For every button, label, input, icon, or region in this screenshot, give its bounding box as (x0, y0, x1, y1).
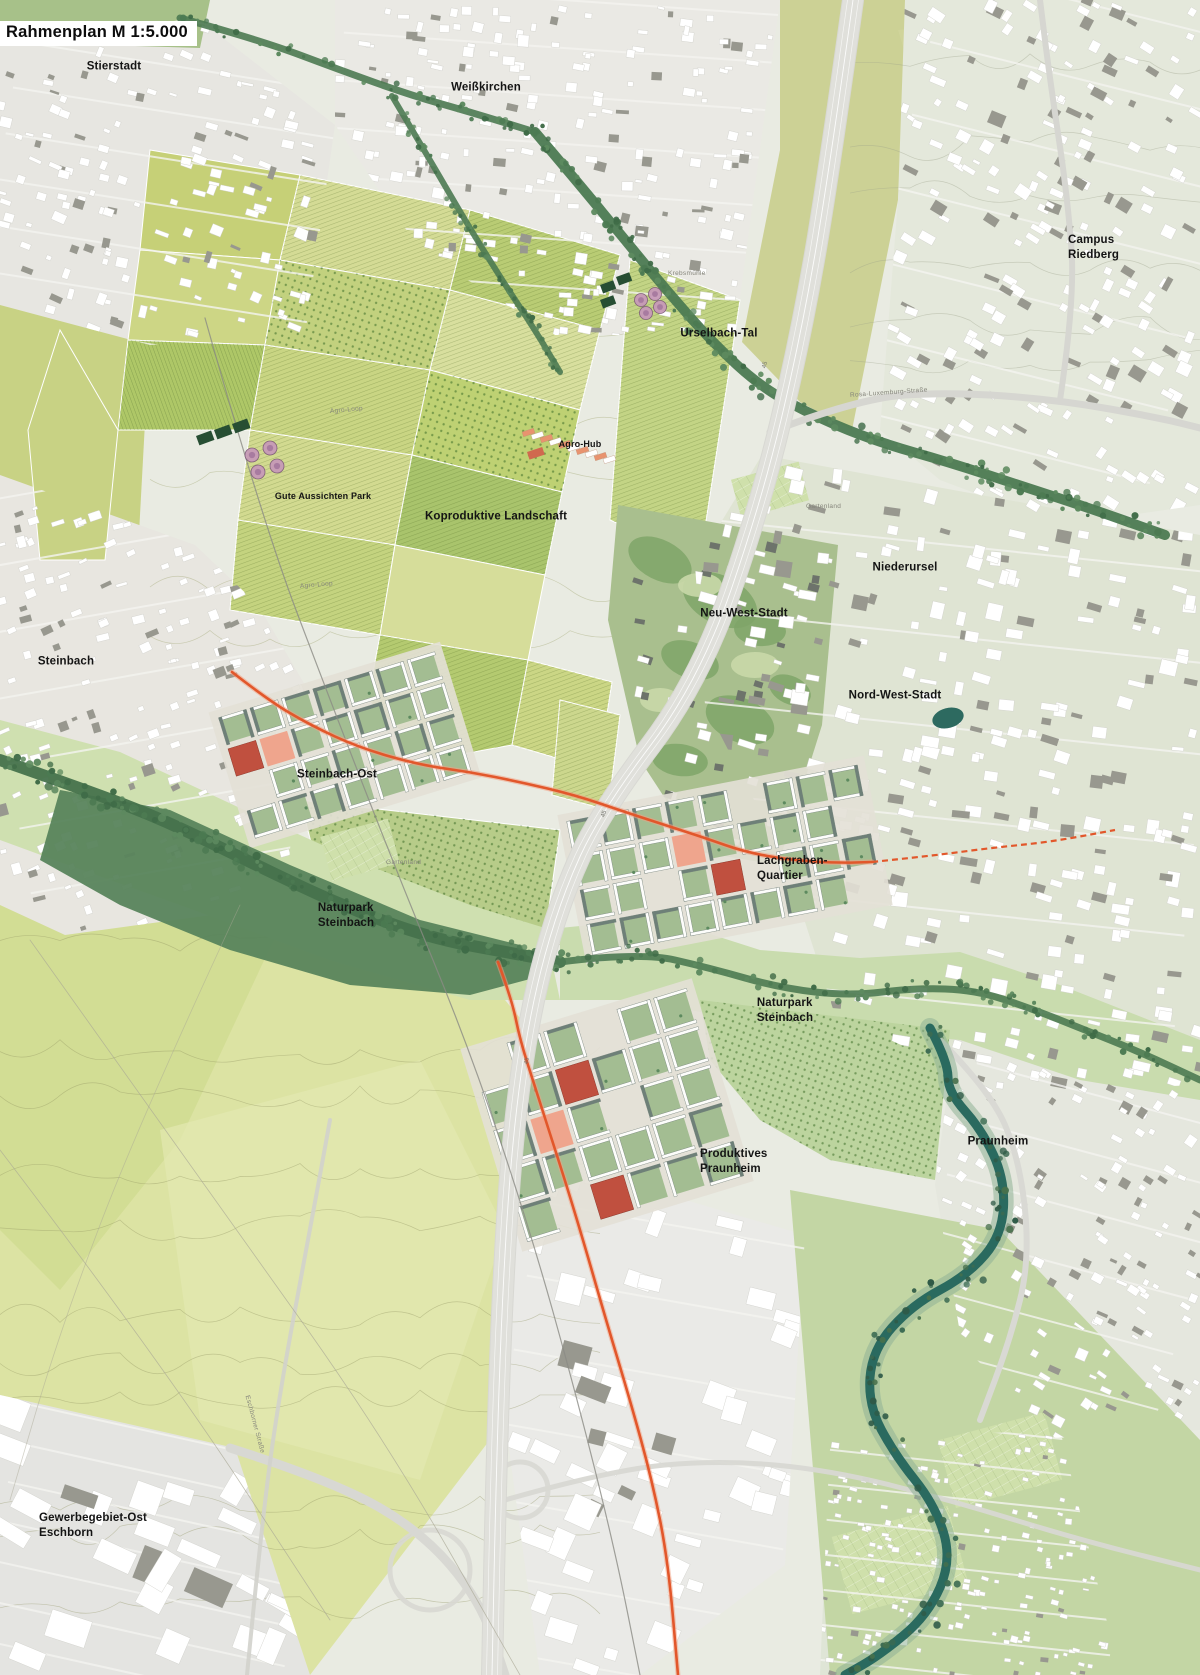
map-canvas (0, 0, 1200, 1675)
map-title: Rahmenplan M 1:5.000 (0, 21, 197, 46)
rahmenplan-map: Rahmenplan M 1:5.000 StierstadtWeißkirch… (0, 0, 1200, 1675)
map-title-text: Rahmenplan M 1:5.000 (6, 23, 188, 41)
